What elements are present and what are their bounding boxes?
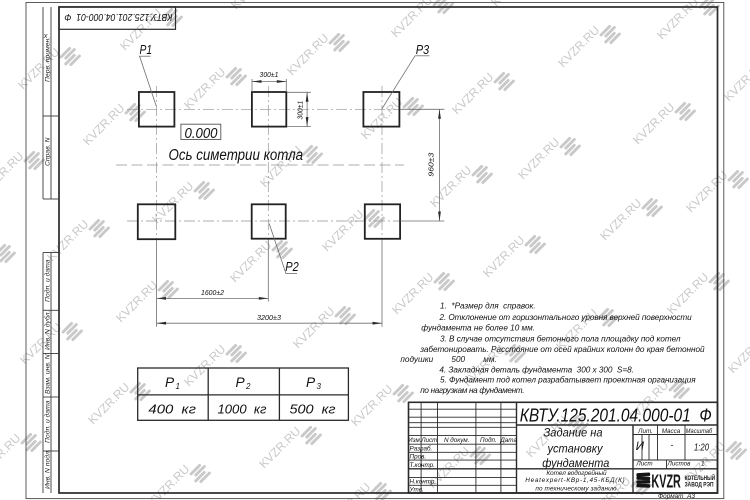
svg-text:Масса: Масса [662, 428, 681, 435]
svg-text:1:20: 1:20 [694, 442, 709, 453]
svg-text:фундамента не более 10 мм.: фундамента не более 10 мм. [421, 323, 535, 332]
svg-text:Утв.: Утв. [409, 486, 424, 493]
svg-text:Пров.: Пров. [410, 453, 427, 460]
svg-text:Лист: Лист [420, 437, 437, 444]
svg-text:P2: P2 [285, 260, 299, 274]
svg-text:по нагрузкам на фундамент.: по нагрузкам на фундамент. [420, 386, 524, 395]
svg-text:Дата: Дата [499, 437, 517, 444]
svg-text:И: И [636, 441, 645, 453]
svg-text:Формат А3: Формат А3 [658, 493, 695, 500]
svg-text:300±1: 300±1 [296, 101, 305, 120]
svg-text:Инв. N дубл.: Инв. N дубл. [44, 311, 52, 350]
svg-text:P: P [165, 375, 175, 390]
svg-text:N докум.: N докум. [444, 436, 469, 444]
svg-text:Heatexpert-КВр-1,45-КБД(К): Heatexpert-КВр-1,45-КБД(К) [525, 477, 624, 484]
svg-text:Подп. и дата: Подп. и дата [44, 400, 52, 443]
svg-text:КВТУ.125.201.04.000-01 Ф: КВТУ.125.201.04.000-01 Ф [65, 11, 173, 23]
svg-text:P: P [306, 375, 316, 390]
svg-text:5. Фундамент под котел разраба: 5. Фундамент под котел разрабатывает про… [440, 376, 696, 385]
svg-text:2: 2 [245, 382, 251, 391]
svg-text:400 кг: 400 кг [148, 402, 196, 417]
svg-text:500 кг: 500 кг [290, 402, 337, 417]
svg-text:-: - [671, 440, 674, 450]
svg-text:1: 1 [701, 461, 705, 468]
svg-text:0.000: 0.000 [185, 126, 218, 142]
svg-text:1000 кг: 1000 кг [218, 402, 268, 417]
svg-text:Подп.: Подп. [480, 436, 497, 444]
svg-text:КВТУ.125.201.04.000-01 Ф: КВТУ.125.201.04.000-01 Ф [520, 404, 712, 425]
svg-text:установку: установку [547, 441, 604, 455]
svg-text:2. Отклонение от горизонтально: 2. Отклонение от горизонтального уровня … [439, 313, 693, 322]
svg-text:3. В случае отсутствия бетонно: 3. В случае отсутствия бетонного пола пл… [440, 335, 681, 344]
svg-text:3: 3 [317, 382, 322, 391]
svg-text:забетонировать. Расстояние от: забетонировать. Расстояние от осей крайн… [419, 345, 705, 354]
svg-text:P1: P1 [140, 43, 153, 57]
svg-text:KVZR: KVZR [651, 470, 681, 491]
svg-text:Листов: Листов [667, 461, 692, 468]
svg-text:Лит.: Лит. [637, 428, 653, 435]
svg-text:3200±3: 3200±3 [257, 313, 281, 322]
svg-text:Перв. примен.: Перв. примен. [45, 37, 52, 82]
svg-text:Лист: Лист [635, 461, 652, 468]
svg-text:Подп. и дата: Подп. и дата [44, 259, 52, 302]
svg-text:Справ. N: Справ. N [45, 137, 52, 166]
svg-text:Масштаб: Масштаб [686, 427, 713, 435]
svg-text:Т.контр.: Т.контр. [410, 462, 435, 469]
svg-text:4. Закладная деталь фундамента: 4. Закладная деталь фундамента 300 х 300… [439, 365, 634, 374]
svg-text:по техническому заданию: по техническому заданию [535, 484, 616, 492]
svg-text:Инв. N подл.: Инв. N подл. [44, 449, 52, 489]
svg-text:Изм.: Изм. [408, 437, 421, 444]
svg-text:ЗАВОД РЭП: ЗАВОД РЭП [685, 481, 714, 488]
svg-text:Взам. инв. N: Взам. инв. N [45, 354, 52, 394]
svg-text:300±1: 300±1 [260, 70, 279, 79]
svg-text:1: 1 [176, 382, 180, 391]
svg-text:Разраб.: Разраб. [410, 445, 433, 453]
svg-text:1600±2: 1600±2 [201, 288, 224, 297]
svg-text:960±3: 960±3 [426, 153, 435, 177]
svg-text:P3: P3 [416, 43, 430, 57]
svg-text:P: P [236, 375, 246, 390]
svg-text:1. *Размер для справок.: 1. *Размер для справок. [440, 302, 536, 311]
svg-text:подушки 500 мм.: подушки 500 мм. [400, 355, 496, 364]
svg-text:фундамента: фундамента [542, 456, 609, 470]
svg-text:Котел водогрейный: Котел водогрейный [546, 469, 607, 477]
svg-text:Н.контр.: Н.контр. [410, 479, 437, 486]
svg-text:Ось симетрии котла: Ось симетрии котла [169, 147, 304, 164]
svg-text:Задание на: Задание на [544, 426, 603, 440]
svg-text:х: х [43, 31, 48, 40]
